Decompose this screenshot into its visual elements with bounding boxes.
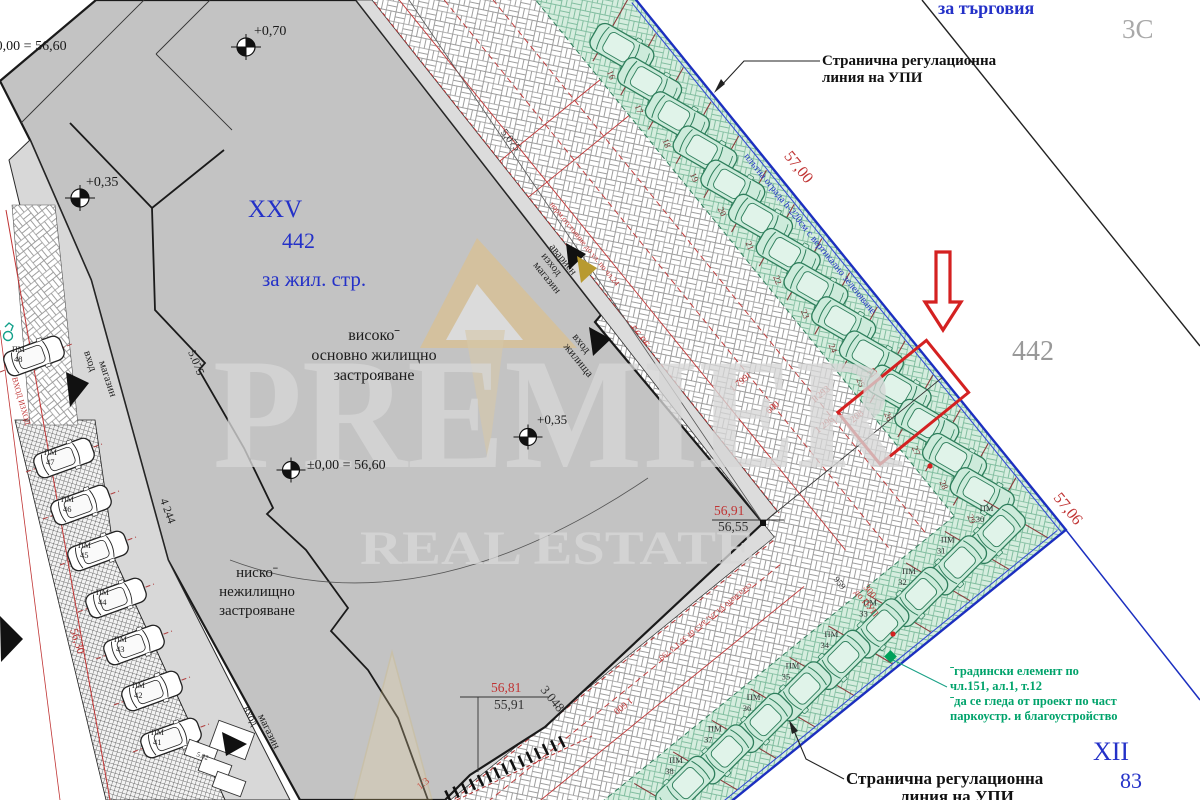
svg-text:ПМ: ПМ (747, 692, 761, 702)
svg-text:56,91: 56,91 (714, 503, 744, 518)
svg-text:ˉда се гледа от проект по част: ˉда се гледа от проект по част (950, 694, 1117, 708)
svg-text:31: 31 (937, 545, 946, 555)
svg-text:ПМ: ПМ (708, 723, 722, 733)
svg-text:35: 35 (782, 671, 791, 681)
svg-text:паркоустр. и благоустройство: паркоустр. и благоустройство (950, 709, 1118, 723)
svg-text:ПМ: ПМ (78, 541, 91, 550)
svg-text:34: 34 (820, 640, 829, 650)
svg-text:ПМ: ПМ (902, 566, 916, 576)
svg-text:чл.151, ал.1, т.12: чл.151, ал.1, т.12 (950, 679, 1042, 693)
svg-text:застрояване: застрояване (219, 603, 295, 619)
svg-text:38: 38 (665, 766, 674, 776)
svg-text:442: 442 (282, 228, 315, 253)
svg-text:Странична регулационна: Странична регулационна (822, 53, 997, 69)
svg-text:ПМ: ПМ (980, 503, 994, 513)
svg-text:ПМ: ПМ (151, 728, 164, 737)
svg-text:56,81: 56,81 (491, 680, 521, 695)
svg-text:застрояване: застрояване (334, 367, 415, 384)
svg-text:XXV: XXV (248, 196, 302, 223)
svg-text:ПМ: ПМ (61, 495, 74, 504)
svg-text:ПМ: ПМ (132, 681, 145, 690)
svg-text:±0,00 = 56,60: ±0,00 = 56,60 (0, 39, 67, 54)
svg-text:44: 44 (98, 597, 107, 607)
svg-text:55,91: 55,91 (494, 697, 524, 712)
svg-text:Странична регулационна: Странична регулационна (846, 769, 1044, 788)
svg-text:56,55: 56,55 (718, 519, 749, 534)
svg-text:нискоˉ: нискоˉ (236, 565, 278, 581)
svg-text:48: 48 (14, 354, 23, 364)
svg-text:46: 46 (63, 504, 72, 514)
svg-text:3C: 3C (1122, 14, 1154, 44)
svg-text:30: 30 (976, 514, 985, 524)
svg-text:+0,70: +0,70 (254, 24, 286, 39)
svg-text:47: 47 (46, 457, 55, 467)
svg-text:32: 32 (898, 577, 907, 587)
svg-text:нежилищно: нежилищно (219, 584, 295, 600)
svg-text:ПМ: ПМ (786, 660, 800, 670)
svg-text:XII: XII (1093, 737, 1129, 766)
svg-text:45: 45 (80, 550, 89, 560)
svg-text:ПМ: ПМ (12, 345, 25, 354)
svg-text:линия на УПИ: линия на УПИ (822, 70, 923, 86)
svg-text:+0,35: +0,35 (86, 175, 118, 190)
svg-text:±0,00 = 56,60: ±0,00 = 56,60 (307, 458, 386, 473)
svg-text:линия на УПИ: линия на УПИ (900, 787, 1014, 800)
svg-text:ПМ: ПМ (114, 635, 127, 644)
svg-text:83: 83 (1120, 768, 1142, 793)
svg-text:442: 442 (1012, 336, 1054, 367)
svg-text:основно жилищно: основно жилищно (311, 347, 436, 364)
svg-text:високоˉ: високоˉ (348, 327, 400, 344)
svg-text:36: 36 (743, 703, 752, 713)
svg-text:ˉградински елемент по: ˉградински елемент по (950, 664, 1079, 678)
svg-text:ПМ: ПМ (44, 448, 57, 457)
svg-text:42: 42 (134, 690, 143, 700)
svg-text:REAL ESTATE: REAL ESTATE (360, 522, 755, 575)
svg-text:за жил. стр.: за жил. стр. (262, 267, 366, 291)
svg-text:ПМ: ПМ (824, 629, 838, 639)
svg-text:ПМ: ПМ (669, 755, 683, 765)
svg-text:41: 41 (153, 737, 162, 747)
svg-text:за търговия: за търговия (938, 0, 1034, 18)
svg-text:ПМ: ПМ (96, 588, 109, 597)
svg-text:+0,35: +0,35 (537, 412, 567, 427)
svg-text:37: 37 (704, 734, 713, 744)
svg-text:ПМ: ПМ (941, 534, 955, 544)
svg-text:43: 43 (116, 644, 125, 654)
